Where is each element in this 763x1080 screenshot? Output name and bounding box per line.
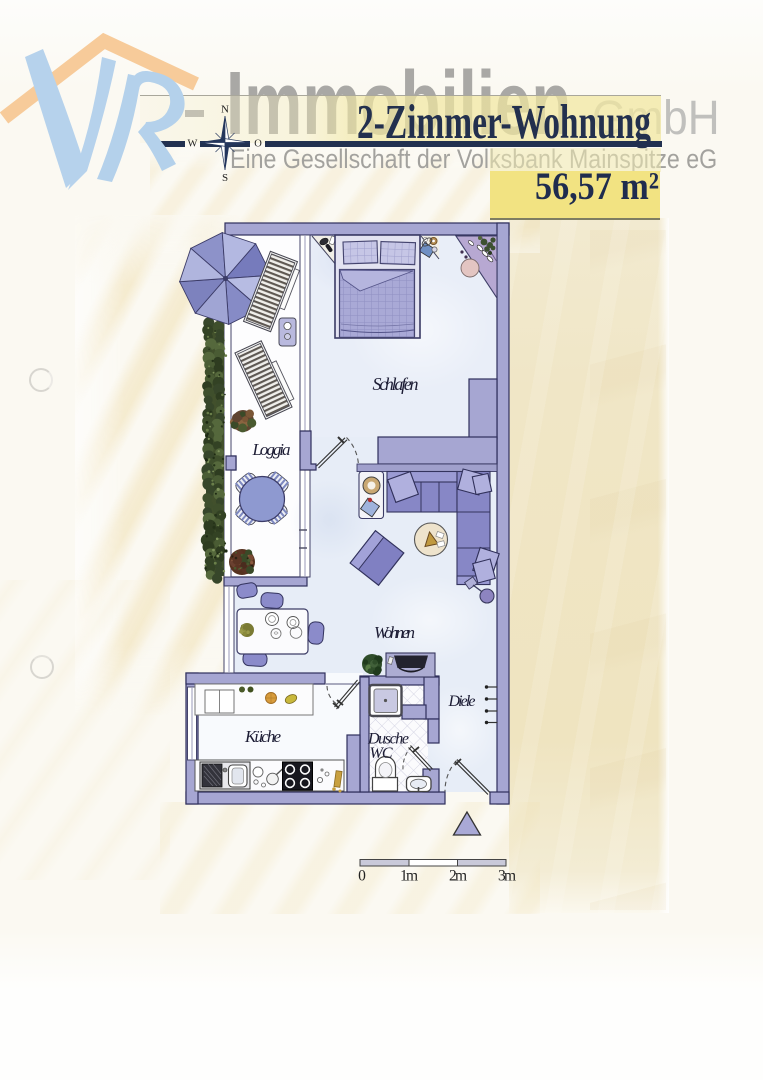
svg-text:Küche: Küche bbox=[244, 727, 281, 746]
svg-text:Loggia: Loggia bbox=[252, 440, 291, 459]
svg-text:3m: 3m bbox=[498, 868, 516, 885]
svg-text:Wohnen: Wohnen bbox=[374, 623, 415, 642]
svg-text:0: 0 bbox=[358, 868, 366, 885]
svg-text:1m: 1m bbox=[400, 868, 418, 885]
svg-text:WC: WC bbox=[370, 745, 393, 762]
svg-text:2m: 2m bbox=[449, 868, 467, 885]
svg-text:Diele: Diele bbox=[448, 693, 476, 710]
svg-text:Schlafen: Schlafen bbox=[373, 374, 419, 394]
